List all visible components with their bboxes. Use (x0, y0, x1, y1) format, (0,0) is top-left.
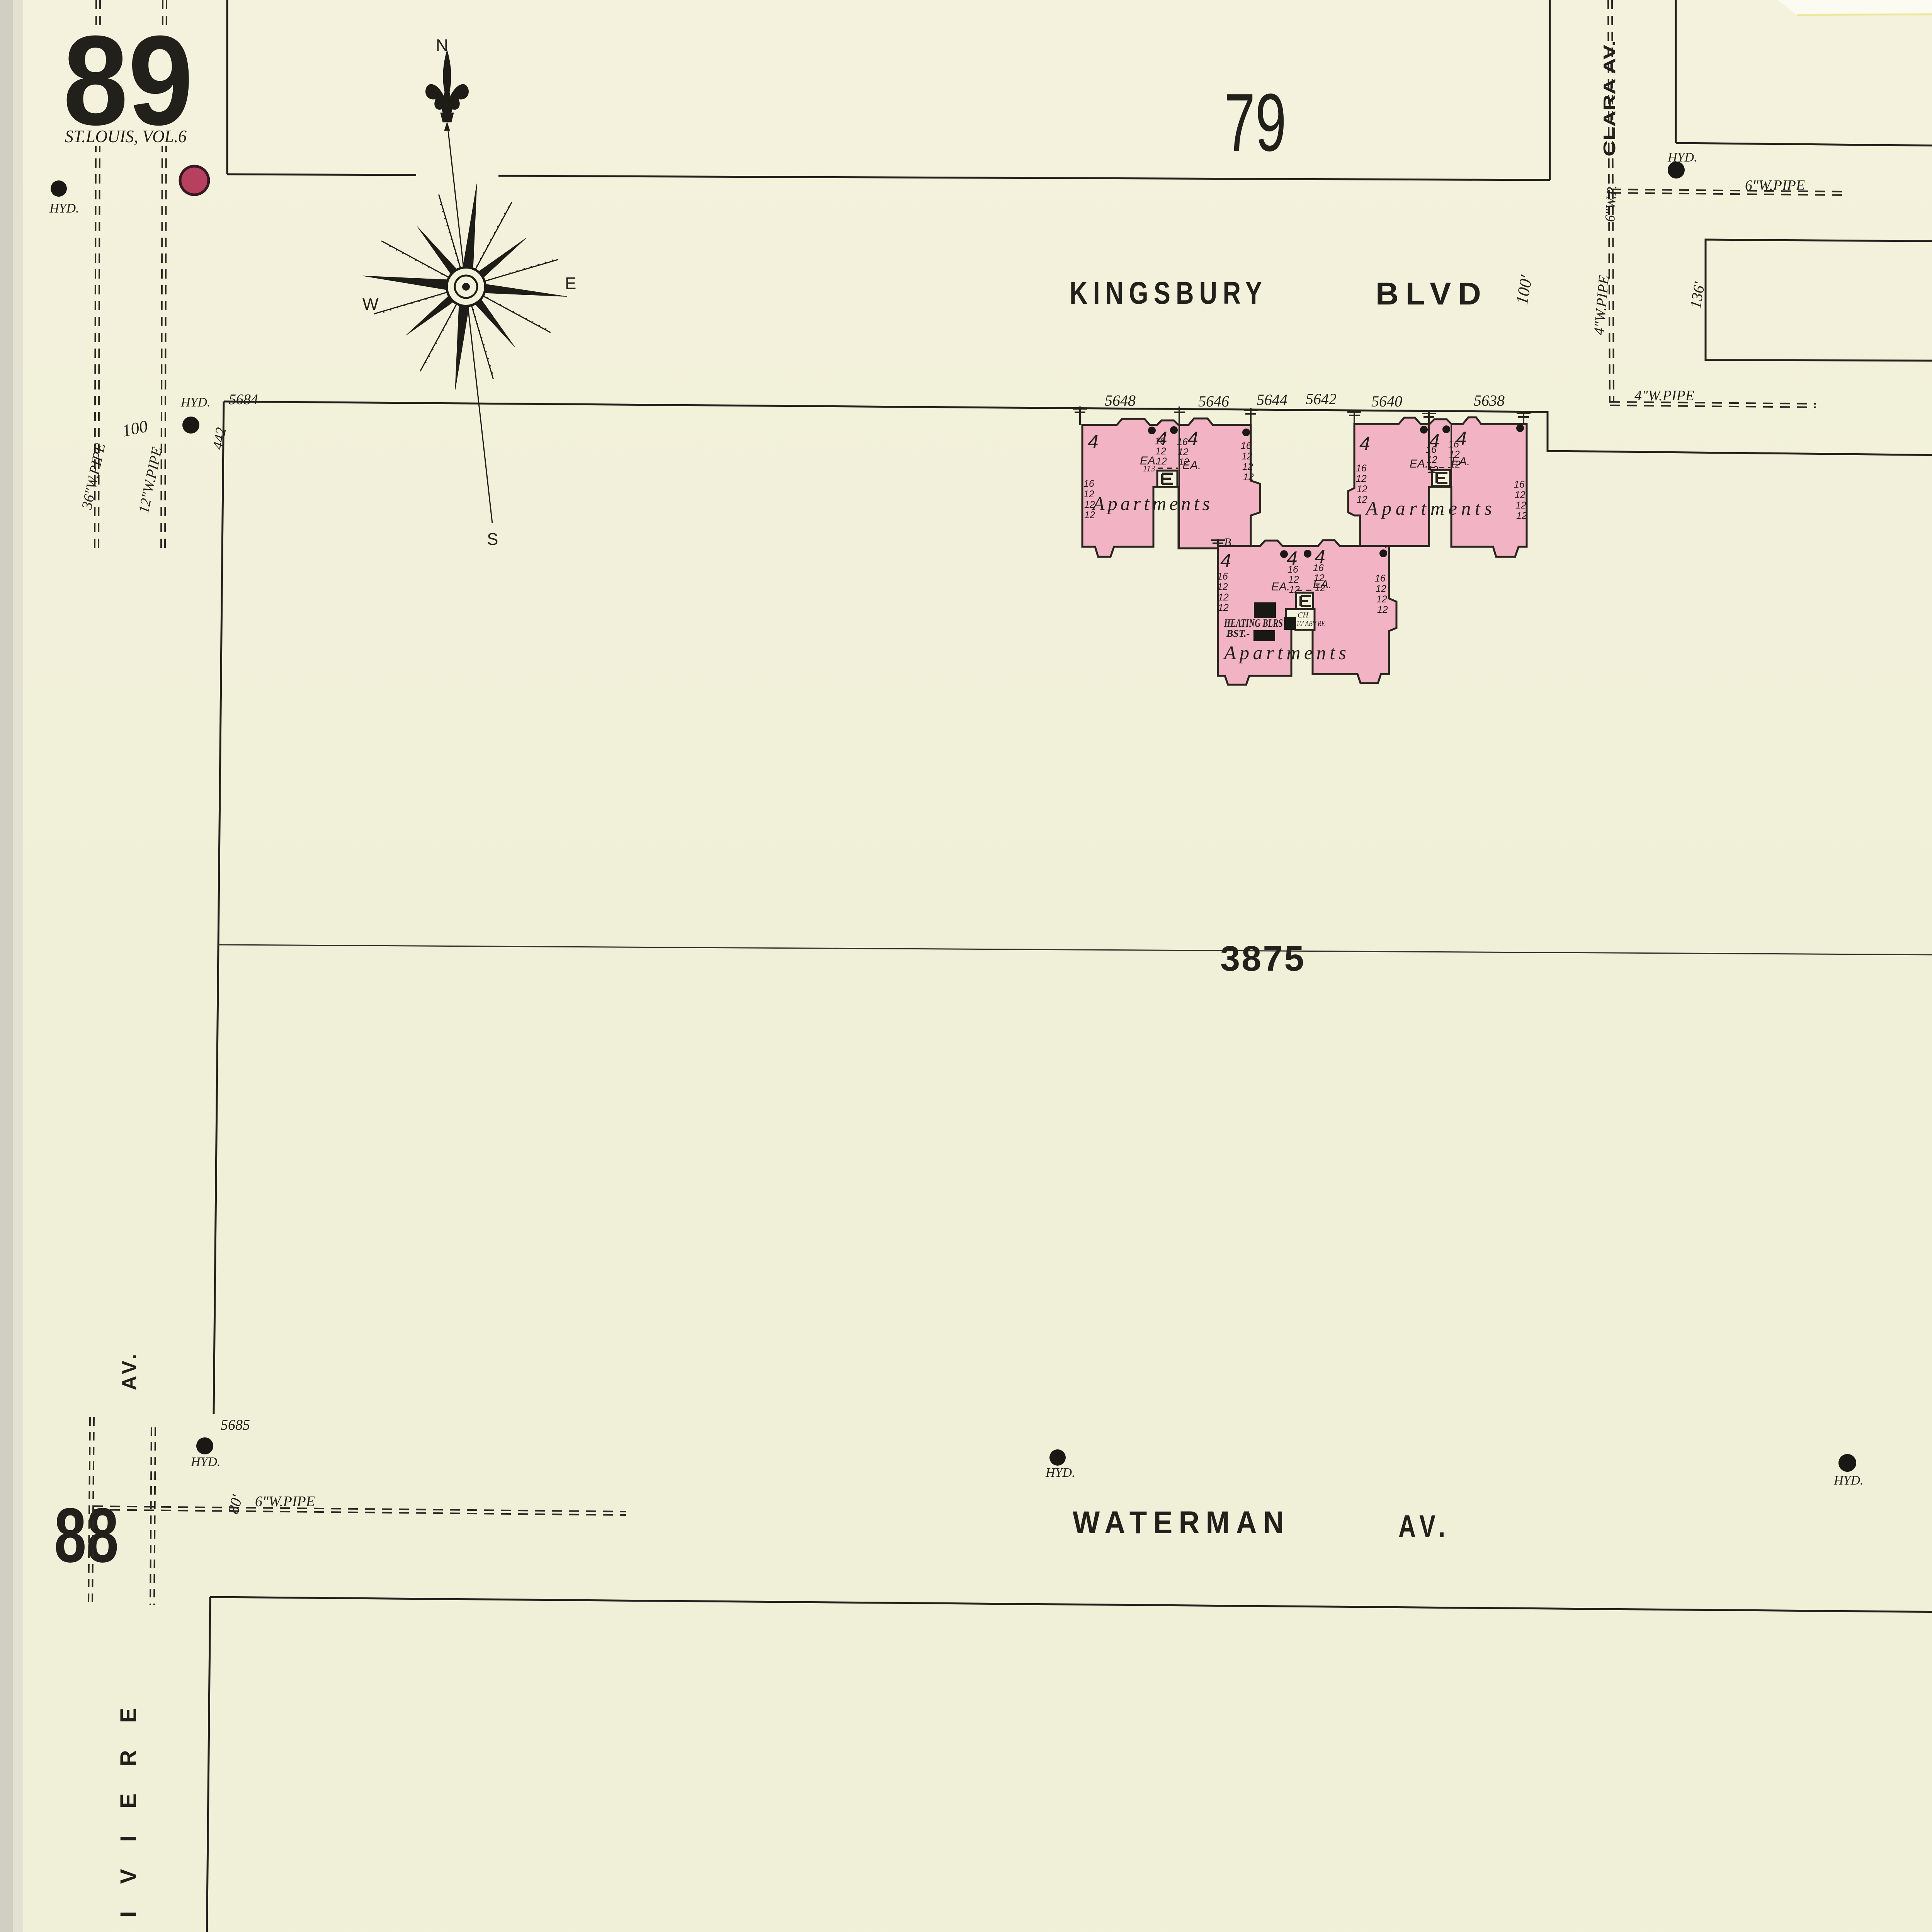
svg-text:HYD.: HYD. (1045, 1466, 1075, 1480)
svg-text:HYD.: HYD. (1833, 1473, 1864, 1488)
svg-text:12: 12 (1516, 510, 1527, 521)
svg-text:HYD.: HYD. (1667, 150, 1697, 165)
svg-text:16: 16 (1177, 437, 1188, 447)
svg-text:5640: 5640 (1371, 393, 1402, 410)
svg-text:4: 4 (1220, 550, 1231, 571)
svg-text:6"W.PIPE: 6"W.PIPE (255, 1493, 315, 1510)
svg-text:6"W.P.: 6"W.P. (1602, 185, 1619, 222)
svg-text:WATERMAN: WATERMAN (1073, 1505, 1290, 1540)
svg-text:12: 12 (1218, 592, 1229, 603)
svg-text:AV.: AV. (1398, 1509, 1451, 1544)
svg-text:BLVD: BLVD (1376, 276, 1488, 311)
svg-text:EA.: EA. (1313, 578, 1332, 591)
svg-text:12: 12 (1289, 584, 1300, 595)
svg-text:N: N (436, 36, 448, 55)
svg-text:5638: 5638 (1474, 392, 1505, 409)
svg-text:16: 16 (1155, 436, 1165, 447)
svg-text:B.: B. (1224, 536, 1234, 549)
svg-text:HYD.: HYD. (180, 395, 211, 410)
svg-text:12: 12 (1356, 473, 1367, 484)
svg-text:BST.-: BST.- (1226, 628, 1250, 639)
svg-text:HYD.: HYD. (190, 1455, 221, 1469)
svg-text:4: 4 (1187, 428, 1198, 449)
svg-text:113: 113 (1143, 464, 1155, 473)
svg-text:12: 12 (1217, 582, 1228, 592)
svg-text:5642: 5642 (1306, 390, 1337, 408)
svg-text:ST.LOUIS, VOL.6: ST.LOUIS, VOL.6 (65, 126, 187, 146)
svg-text:12: 12 (1376, 594, 1387, 605)
svg-text:KINGSBURY: KINGSBURY (1070, 276, 1267, 311)
svg-text:16: 16 (1287, 564, 1298, 575)
svg-text:HYD.: HYD. (49, 201, 79, 216)
svg-text:W: W (362, 295, 379, 314)
svg-text:16: 16 (1241, 440, 1252, 451)
svg-text:16: 16 (1217, 571, 1228, 582)
svg-text:16: 16 (1375, 573, 1386, 584)
svg-text:10' ABV RF.: 10' ABV RF. (1296, 619, 1326, 628)
svg-text:79: 79 (1224, 77, 1286, 168)
svg-text:S: S (487, 530, 498, 549)
svg-text:12: 12 (1243, 472, 1254, 483)
svg-text:16: 16 (1426, 444, 1437, 455)
svg-text:16: 16 (1514, 479, 1525, 490)
svg-text:16: 16 (1356, 463, 1367, 474)
svg-text:EA.: EA. (1451, 455, 1470, 468)
svg-text:5648: 5648 (1105, 392, 1136, 409)
svg-text:4"W.PIPE: 4"W.PIPE (1634, 388, 1694, 404)
svg-text:EA.: EA. (1182, 459, 1201, 472)
svg-text:16: 16 (1448, 439, 1459, 450)
svg-text:12: 12 (1376, 583, 1386, 594)
svg-text:6"W.PIPE: 6"W.PIPE (1745, 177, 1805, 194)
svg-text:3875: 3875 (1220, 939, 1306, 978)
svg-text:12: 12 (1377, 604, 1388, 615)
svg-text:5685: 5685 (221, 1417, 250, 1433)
svg-text:EA.: EA. (1271, 580, 1290, 593)
svg-text:5684: 5684 (229, 391, 258, 408)
svg-text:4: 4 (1088, 431, 1099, 452)
svg-text:4: 4 (1359, 433, 1370, 454)
svg-text:12: 12 (1357, 484, 1367, 495)
svg-text:12: 12 (1515, 490, 1526, 500)
svg-text:EA.: EA. (1410, 457, 1428, 470)
svg-text:16: 16 (1313, 563, 1324, 573)
svg-text:E: E (565, 274, 576, 293)
svg-text:CLARA AV.: CLARA AV. (1600, 41, 1619, 156)
svg-text:CH.: CH. (1298, 611, 1310, 619)
svg-text:5644: 5644 (1257, 391, 1287, 408)
svg-text:12: 12 (1242, 451, 1252, 462)
svg-text:88: 88 (54, 1492, 119, 1578)
svg-text:5646: 5646 (1198, 393, 1229, 410)
svg-text:AV.: AV. (118, 1351, 141, 1390)
svg-text:12: 12 (1178, 447, 1189, 457)
svg-text:12: 12 (1218, 602, 1229, 613)
svg-text:16: 16 (1083, 478, 1094, 489)
svg-text:12: 12 (1242, 461, 1253, 472)
svg-text:12: 12 (1515, 500, 1526, 511)
